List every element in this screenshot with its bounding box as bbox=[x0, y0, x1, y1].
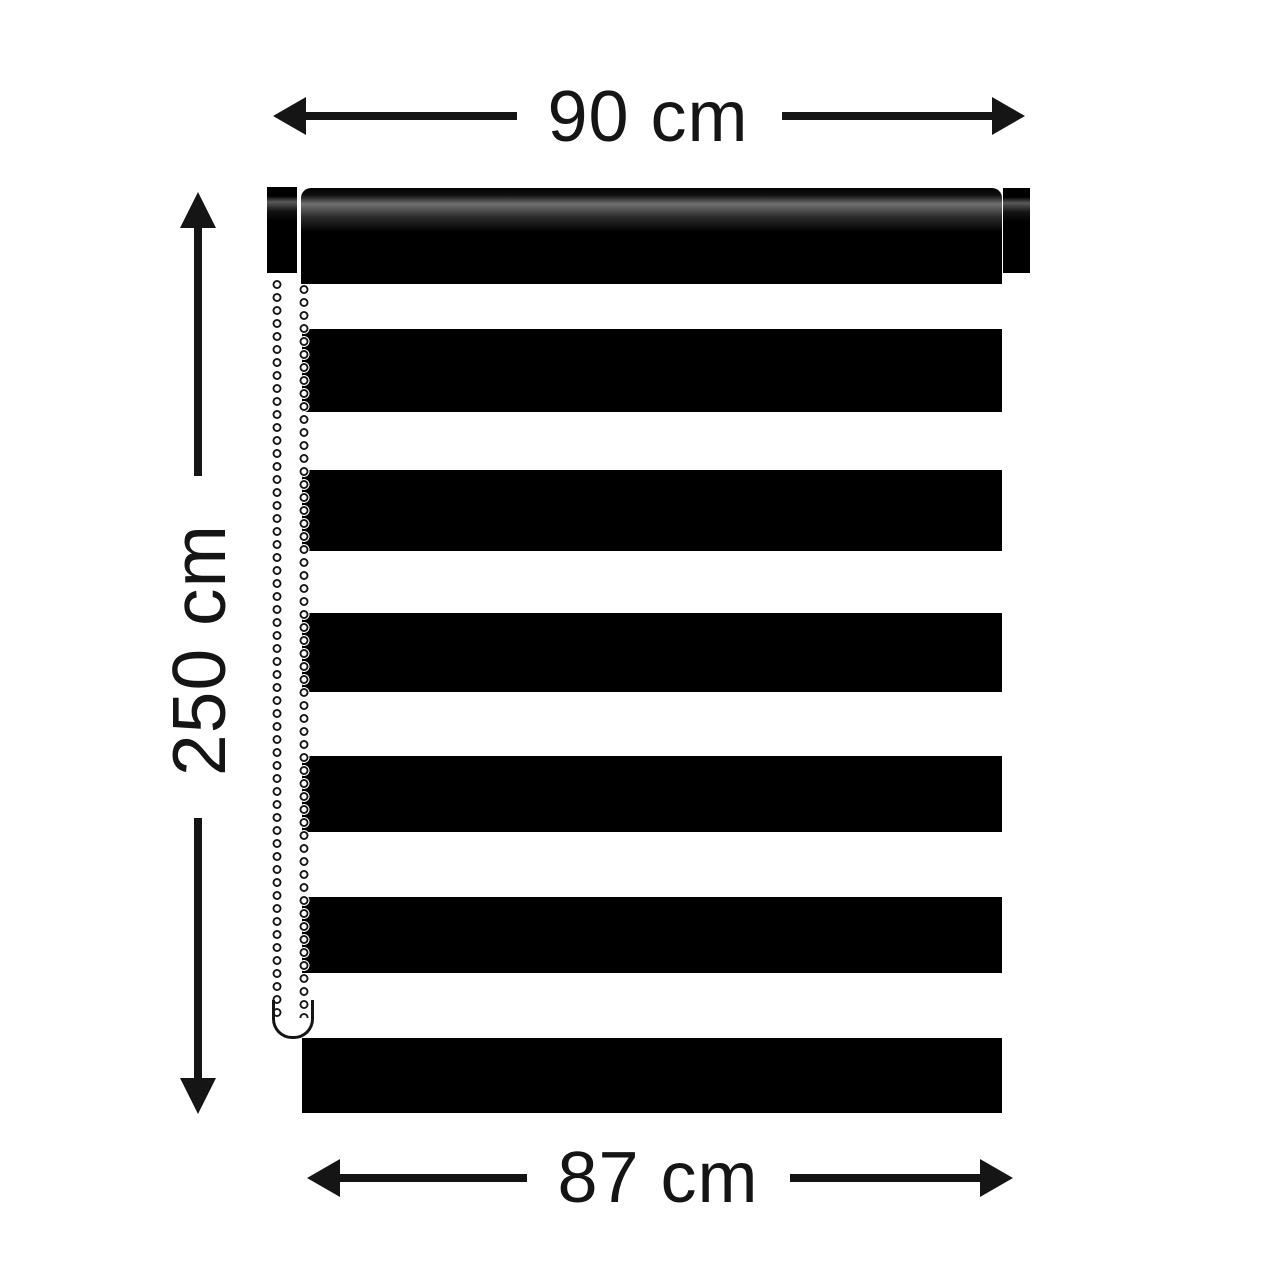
arrow-right-icon bbox=[980, 1159, 1013, 1197]
fabric-stripe bbox=[302, 613, 1002, 692]
chain-loop[interactable] bbox=[272, 1000, 314, 1039]
dimension-line bbox=[790, 1174, 983, 1182]
dimension-line bbox=[337, 1174, 527, 1182]
bottom-bar bbox=[302, 1038, 1002, 1113]
fabric-stripe bbox=[302, 756, 1002, 832]
right-bracket bbox=[1003, 188, 1030, 273]
roller-blind bbox=[0, 0, 1280, 1280]
fabric-stripe bbox=[302, 897, 1002, 973]
chain-strand-back[interactable] bbox=[271, 278, 283, 1018]
fabric-stripe bbox=[302, 470, 1002, 551]
arrow-left-icon bbox=[307, 1159, 340, 1197]
roller-tube bbox=[301, 188, 1002, 284]
bottom-width-label: 87 cm bbox=[528, 1135, 788, 1221]
bottom-width-dimension: 87 cm bbox=[0, 1130, 1280, 1280]
chain-strand-front[interactable] bbox=[298, 283, 310, 1018]
left-bracket bbox=[267, 187, 297, 273]
fabric-stripe bbox=[302, 329, 1002, 412]
